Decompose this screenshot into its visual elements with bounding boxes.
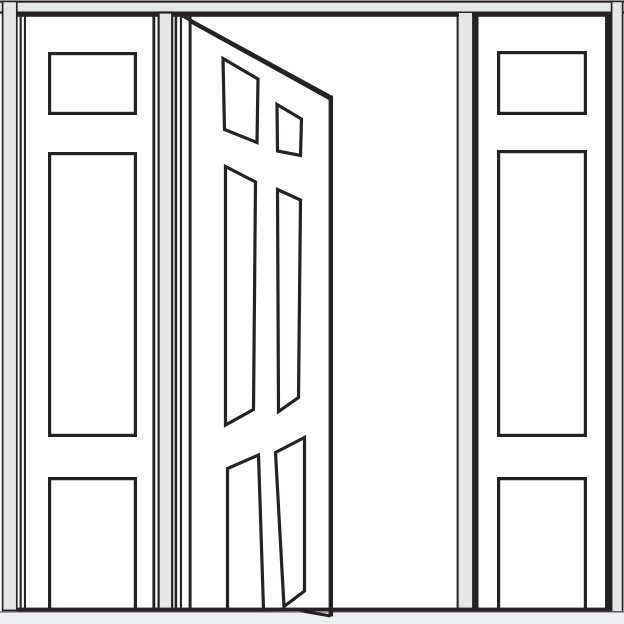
head-jamb [0, 2, 624, 13]
door-illustration [0, 0, 624, 624]
right-mullion-edge [472, 13, 478, 611]
right-mullion [457, 13, 479, 611]
right-frame-jamb [612, 1, 623, 612]
door-jamb-line [175, 13, 178, 611]
left-frame-jamb [3, 1, 17, 610]
right-jamb-thin-line [457, 13, 459, 611]
left-sidelight-stile-line-inner [24, 13, 26, 611]
left-sidelight-right-edge [152, 13, 155, 611]
door-free-edge [329, 95, 333, 616]
header-line [17, 13, 611, 17]
right-sidelight-right-edge [605, 13, 612, 611]
left-mullion-bar [159, 13, 173, 611]
floor-line [17, 608, 611, 612]
open-door-with-sidelights-diagram [0, 0, 624, 624]
left-sidelight-stile-line-outer [20, 13, 22, 611]
right-mullion-bar [459, 13, 472, 611]
door-hinge-edge [189, 14, 192, 611]
door-back-edge-line [180, 14, 182, 611]
